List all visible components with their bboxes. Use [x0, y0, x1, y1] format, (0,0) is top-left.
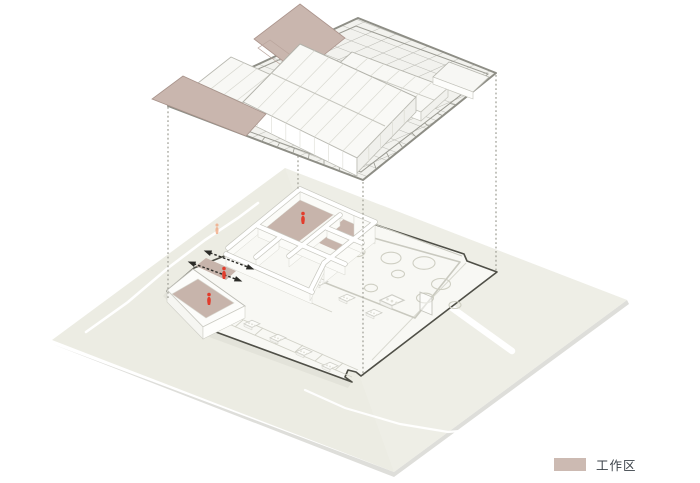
person-icon	[207, 293, 211, 305]
legend: 工作区	[554, 455, 637, 474]
person-icon	[222, 267, 226, 279]
legend-swatch	[554, 458, 586, 471]
diagram-canvas: 工作区	[0, 0, 700, 483]
legend-label: 工作区	[596, 455, 637, 474]
axonometric-diagram	[0, 0, 700, 483]
roof-assembly-layer	[152, 4, 496, 180]
work-area-swatch	[554, 458, 586, 471]
person-icon	[301, 212, 305, 224]
person-icon-faint	[215, 224, 218, 234]
